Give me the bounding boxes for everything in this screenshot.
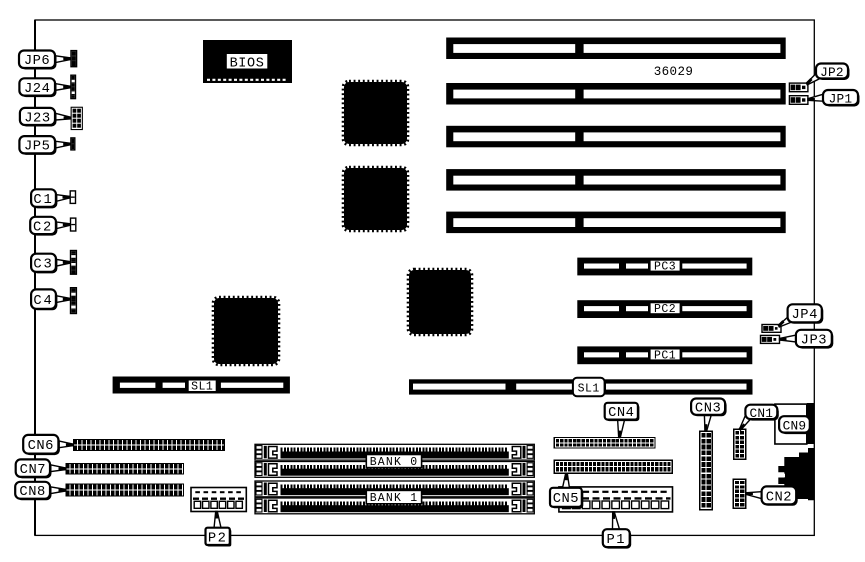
svg-text:CN9: CN9 [783, 418, 807, 433]
svg-text:36029: 36029 [654, 65, 694, 79]
svg-text:CN1: CN1 [750, 406, 774, 421]
svg-text:C3: C3 [33, 258, 53, 273]
svg-text:P2: P2 [208, 531, 228, 546]
svg-text:JP4: JP4 [792, 308, 818, 323]
svg-text:JP3: JP3 [801, 333, 827, 348]
svg-text:BANK 0: BANK 0 [370, 456, 419, 469]
svg-text:CN5: CN5 [553, 492, 579, 507]
svg-text:J23: J23 [24, 111, 50, 126]
svg-text:JP2: JP2 [820, 65, 844, 80]
svg-text:C4: C4 [33, 294, 53, 309]
svg-text:PC3: PC3 [654, 261, 676, 274]
svg-text:CN8: CN8 [19, 485, 45, 500]
svg-text:C2: C2 [33, 220, 53, 235]
svg-text:CN2: CN2 [766, 490, 792, 505]
svg-text:CN4: CN4 [608, 406, 634, 421]
svg-text:PC1: PC1 [654, 349, 676, 362]
svg-text:BANK 1: BANK 1 [370, 492, 419, 505]
svg-text:PC2: PC2 [654, 303, 676, 316]
svg-text:J24: J24 [24, 82, 50, 97]
svg-text:CN7: CN7 [20, 463, 46, 478]
svg-text:SL1: SL1 [578, 383, 600, 396]
svg-text:JP6: JP6 [24, 54, 50, 69]
svg-text:BIOS: BIOS [230, 56, 265, 71]
svg-text:SL1: SL1 [191, 381, 213, 394]
svg-text:CN3: CN3 [695, 402, 721, 417]
svg-text:JP5: JP5 [24, 140, 50, 155]
svg-text:P1: P1 [606, 533, 626, 548]
svg-text:JP1: JP1 [829, 91, 853, 106]
svg-text:C1: C1 [33, 193, 53, 208]
svg-text:CN6: CN6 [28, 439, 54, 454]
